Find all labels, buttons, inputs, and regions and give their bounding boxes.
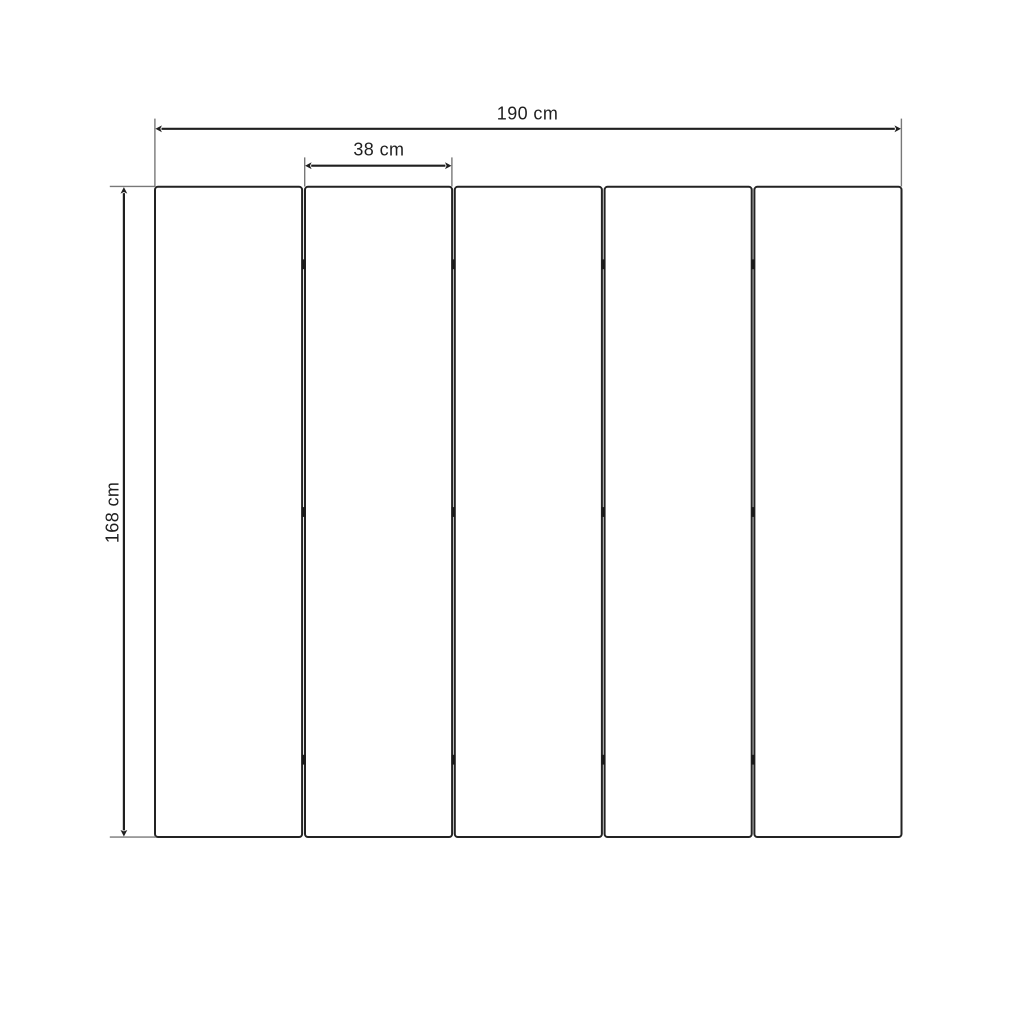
svg-text:168 cm: 168 cm xyxy=(102,482,122,543)
svg-text:38 cm: 38 cm xyxy=(353,140,404,160)
svg-text:190 cm: 190 cm xyxy=(497,104,558,124)
